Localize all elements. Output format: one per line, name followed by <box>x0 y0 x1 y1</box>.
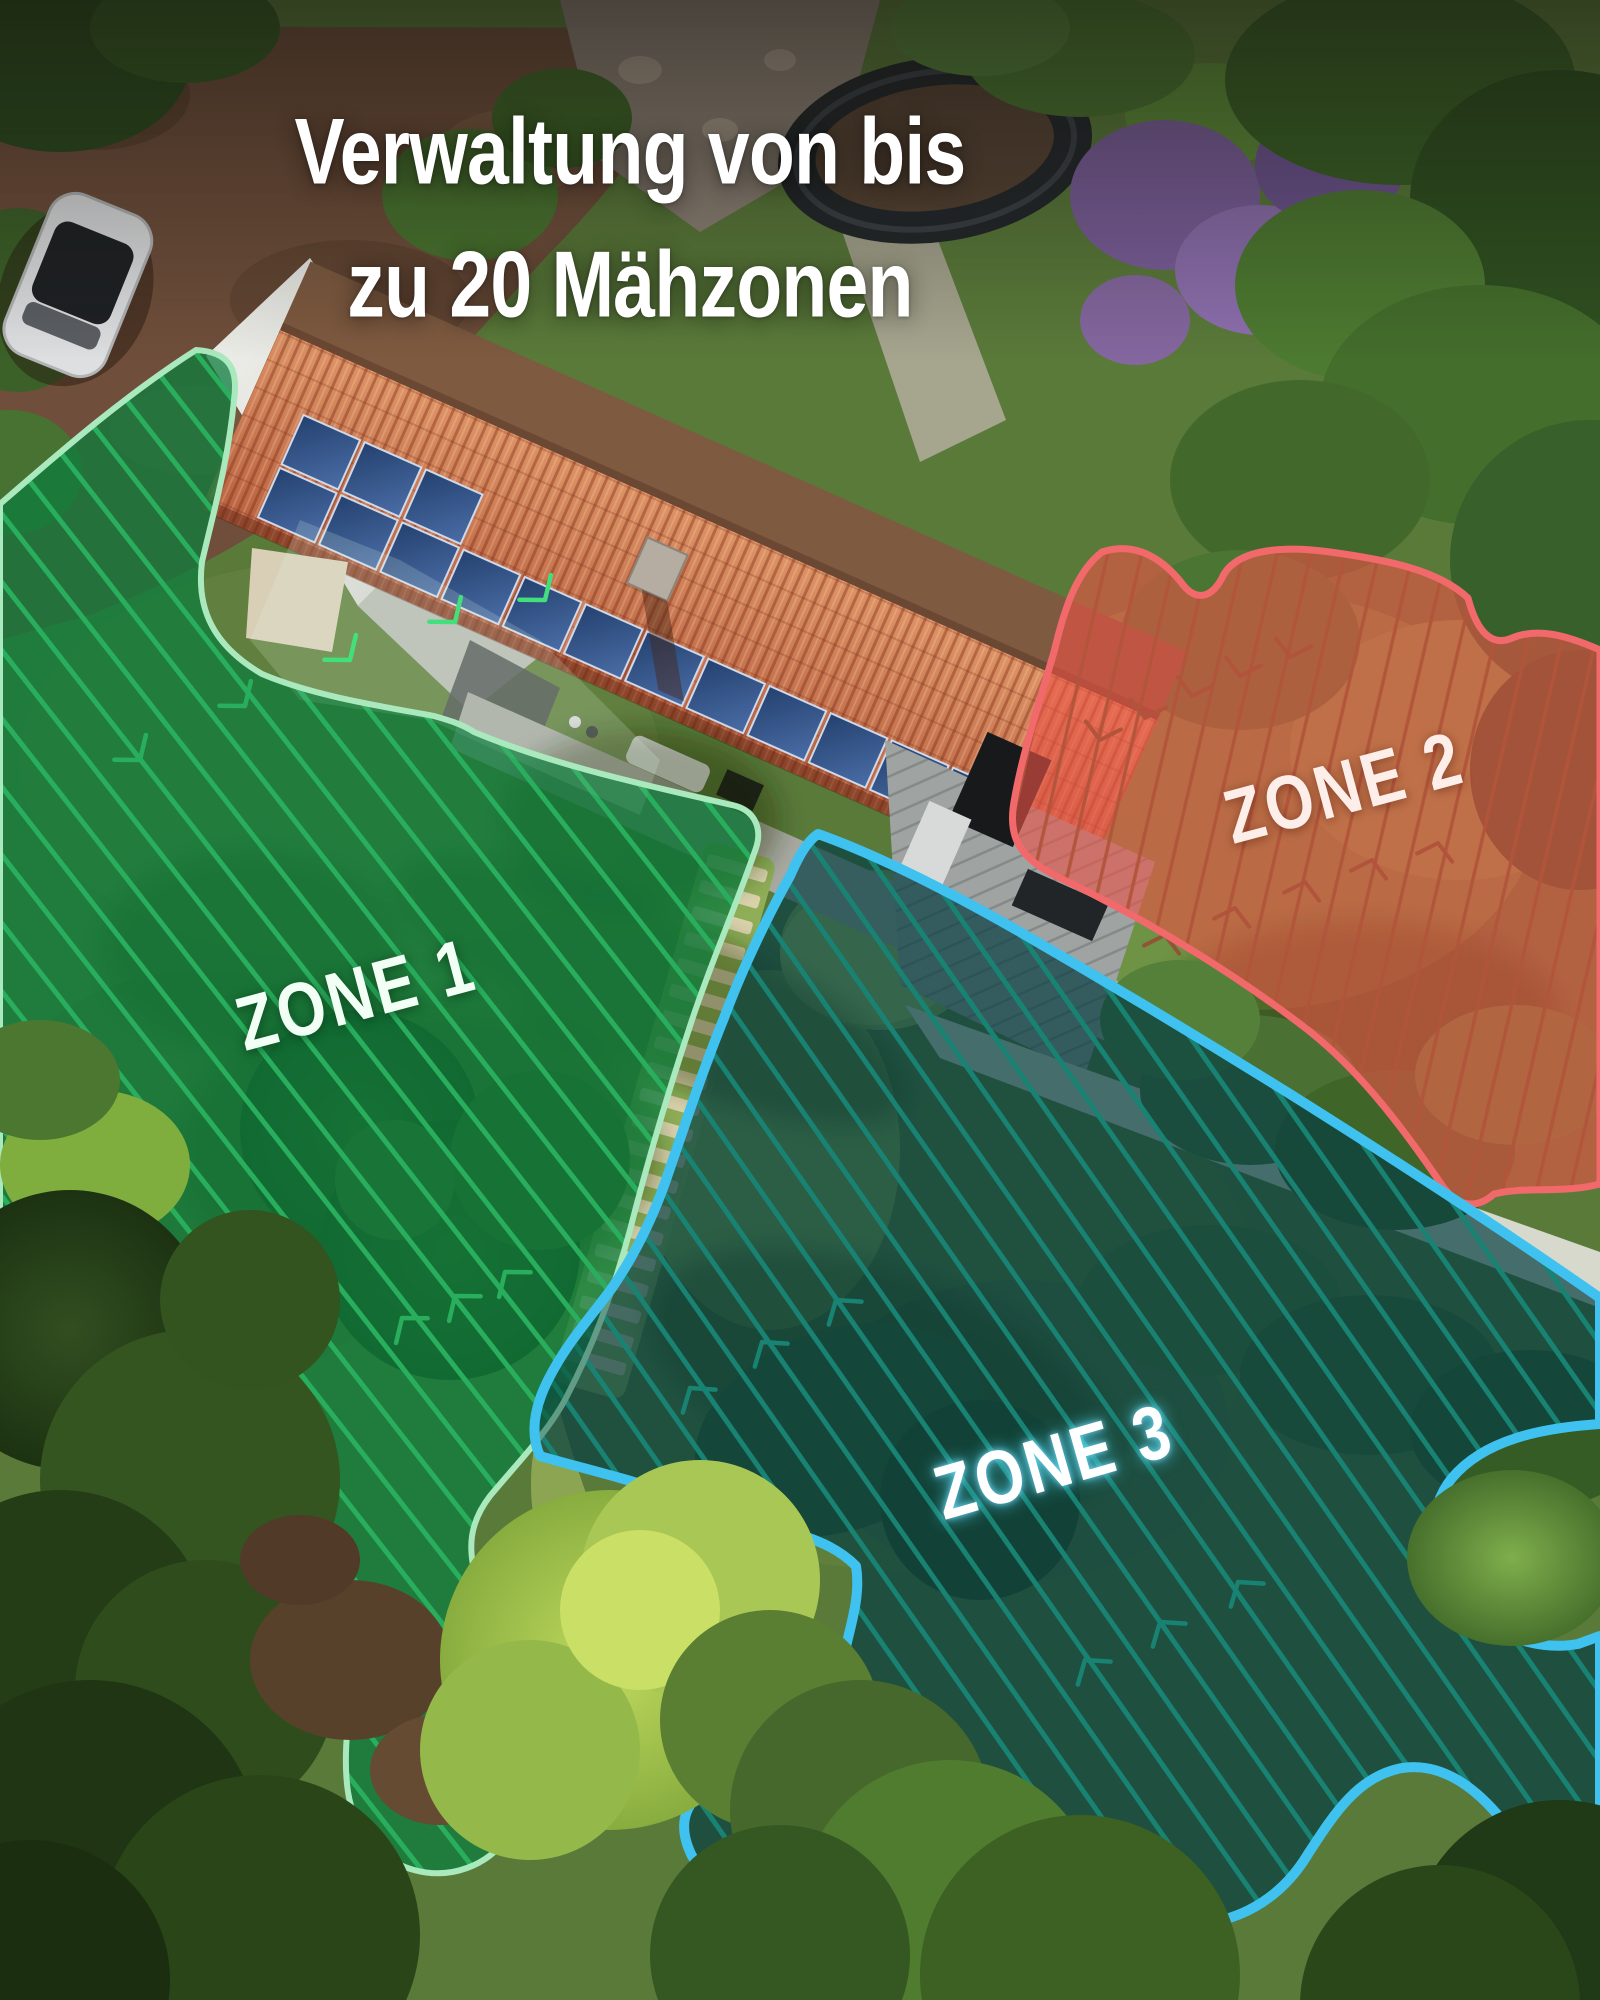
page-title: Verwaltung von bis zu 20 Mähzonen <box>295 85 966 352</box>
title-line-1: Verwaltung von bis <box>295 85 966 218</box>
marketing-image: Verwaltung von bis zu 20 Mähzonen ZONE 1… <box>0 0 1600 2000</box>
title-line-2: zu 20 Mähzonen <box>295 218 966 351</box>
